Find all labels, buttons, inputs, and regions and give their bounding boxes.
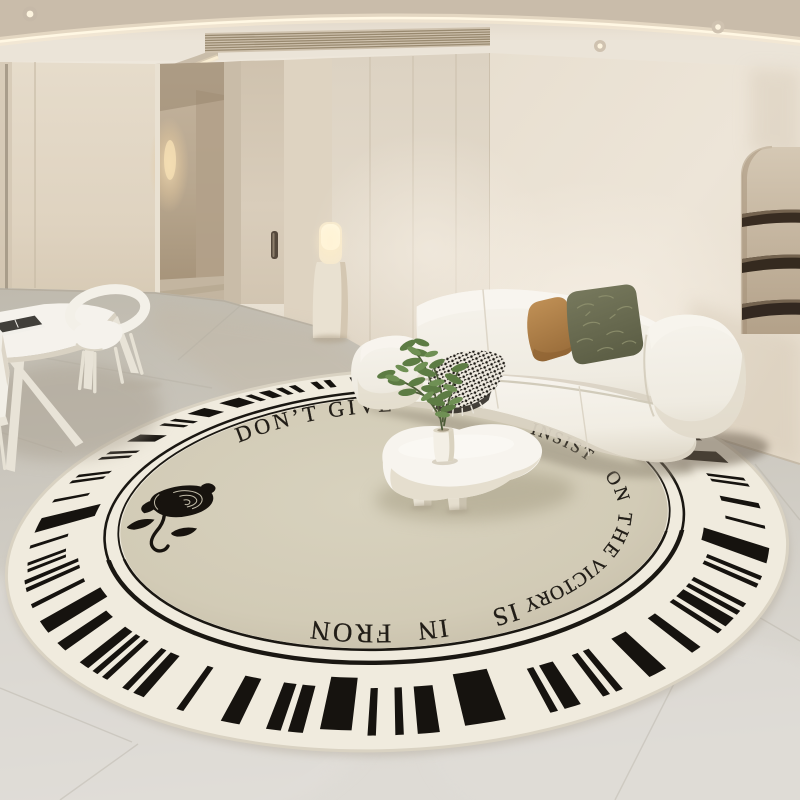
svg-text:IN: IN — [415, 613, 451, 646]
